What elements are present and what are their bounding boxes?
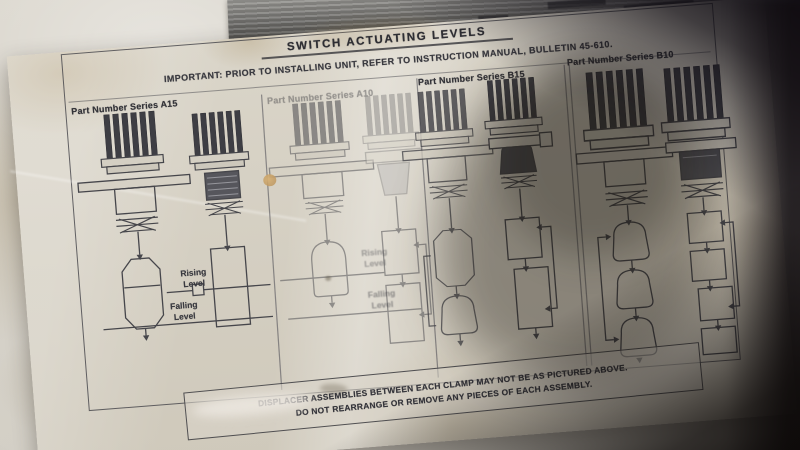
falling-level-label: Falling Level — [155, 298, 215, 324]
falling-level-label-faded: Falling Level — [352, 287, 412, 313]
series-a10-diagram — [264, 92, 436, 351]
illegible-marking — [547, 0, 605, 9]
rising-level-label-faded: Rising Level — [345, 245, 405, 271]
rising-level-label: Rising Level — [164, 265, 224, 291]
photo-scene: SWITCH ACTUATING LEVELS IMPORTANT: PRIOR… — [0, 0, 800, 450]
instruction-sheet: SWITCH ACTUATING LEVELS IMPORTANT: PRIOR… — [7, 0, 797, 450]
glare-smudge — [191, 389, 312, 421]
series-b10-diagram — [570, 62, 753, 367]
series-b15-diagram — [397, 76, 567, 349]
